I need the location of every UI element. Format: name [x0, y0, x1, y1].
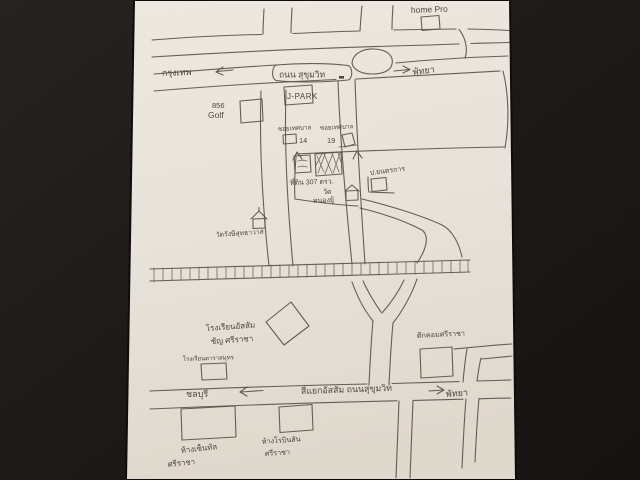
land-plot-label-line3: หนองยู้: [313, 196, 335, 205]
hand-drawn-map-photo: home Pro กรุงเทพ ถนน สุขุมวิท พัทยา J-PA…: [0, 0, 640, 480]
soi19-number: 19: [327, 136, 335, 145]
small-dash-mark: [339, 76, 344, 79]
golf-label-line2: Golf: [208, 110, 224, 120]
jpark-label: J-PARK: [287, 92, 318, 101]
golf-label-line1: 856: [212, 101, 225, 110]
map-sketch: home Pro กรุงเทพ ถนน สุขุมวิท พัทยา J-PA…: [0, 0, 640, 480]
soi14-number: 14: [299, 136, 307, 145]
land-plot-label-line2: วัด: [323, 188, 331, 196]
sukhumvit-road-label: ถนน สุขุมวิท: [279, 70, 326, 81]
robinson-mall-label-line2: ศรีราชา: [265, 447, 291, 458]
home-pro-label: home Pro: [411, 4, 448, 15]
chonburi-label: ชลบุรี: [186, 389, 208, 400]
pattaya2-label: พัทยา: [445, 387, 468, 399]
